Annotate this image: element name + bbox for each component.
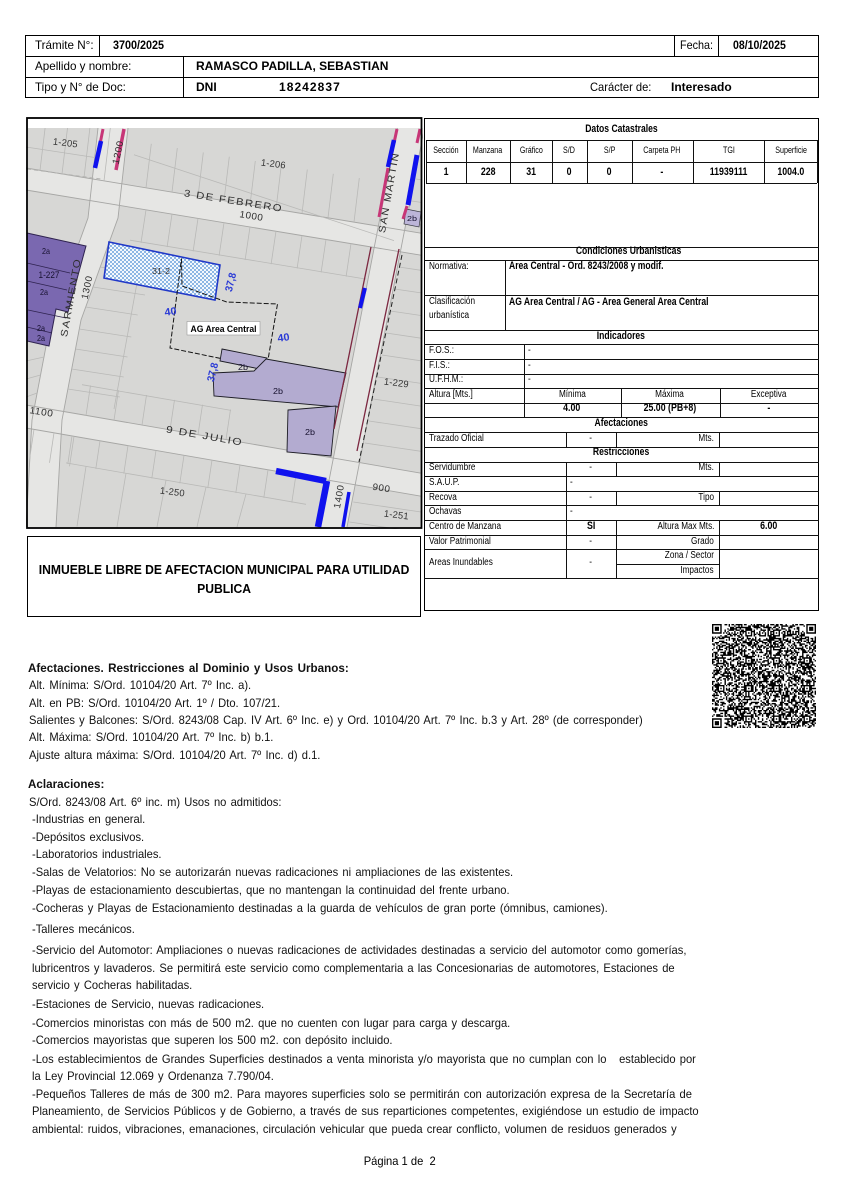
svg-text:2a: 2a xyxy=(42,246,50,256)
svg-text:40: 40 xyxy=(164,305,178,319)
svg-text:2b: 2b xyxy=(238,362,248,372)
svg-text:2b: 2b xyxy=(407,214,417,223)
svg-text:2b: 2b xyxy=(273,386,283,396)
svg-text:AG Area Central: AG Area Central xyxy=(191,324,257,335)
svg-text:40: 40 xyxy=(277,331,291,345)
svg-text:31-2: 31-2 xyxy=(152,266,170,276)
svg-text:1-227: 1-227 xyxy=(39,270,60,280)
svg-text:2b: 2b xyxy=(305,427,315,437)
svg-text:2a: 2a xyxy=(37,323,45,333)
svg-text:2a: 2a xyxy=(40,287,48,297)
svg-text:2a: 2a xyxy=(37,333,45,343)
